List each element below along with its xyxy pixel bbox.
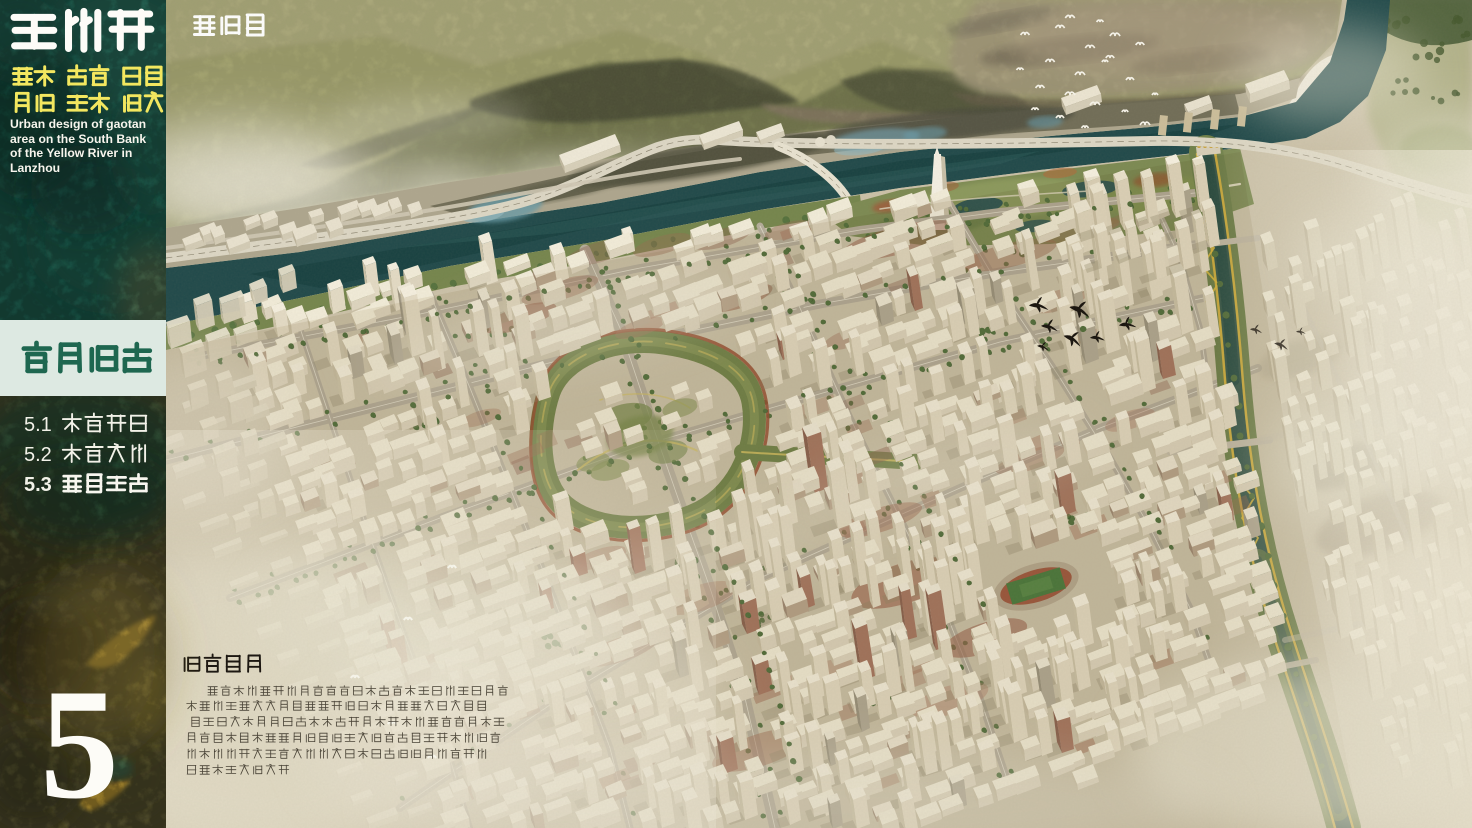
- svg-text:5.3: 5.3: [24, 474, 52, 496]
- svg-text:5.1: 5.1: [24, 414, 52, 436]
- svg-text:5.2: 5.2: [24, 444, 52, 466]
- svg-text:Lanzhou: Lanzhou: [10, 161, 60, 175]
- svg-text:Urban design of gaotan: Urban design of gaotan: [10, 117, 146, 131]
- svg-text:5: 5: [40, 657, 119, 828]
- svg-text:area on the South Bank: area on the South Bank: [10, 132, 146, 146]
- svg-text:of the Yellow River in: of the Yellow River in: [10, 146, 132, 160]
